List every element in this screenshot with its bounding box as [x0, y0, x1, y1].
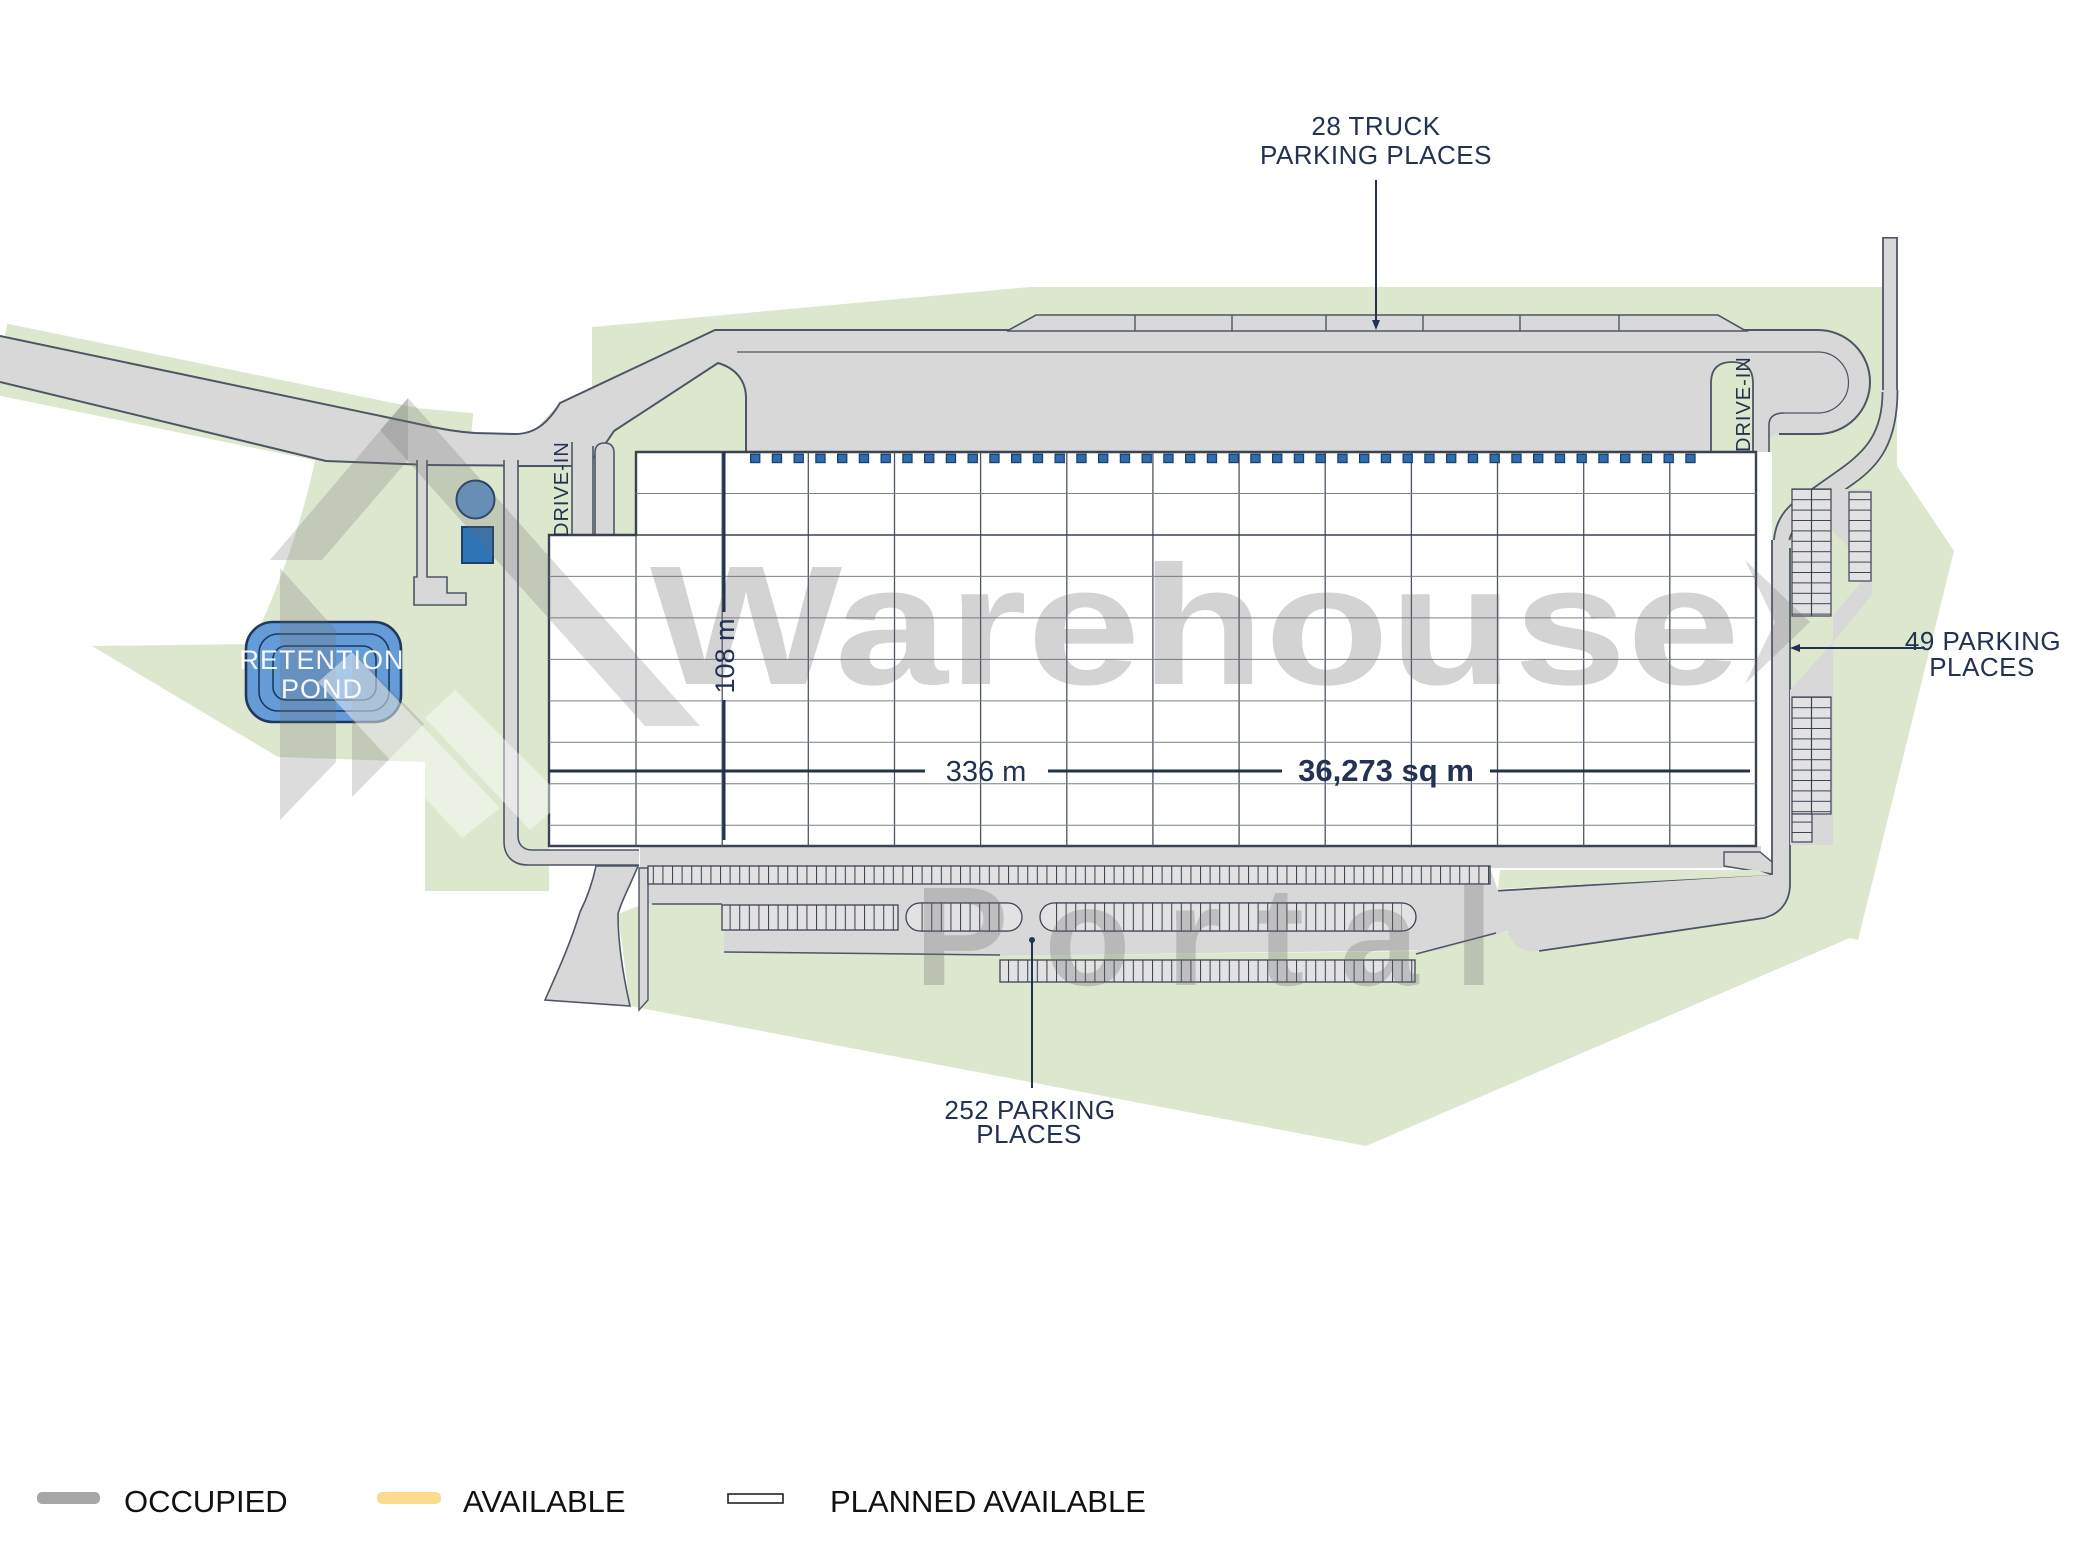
svg-text:AVAILABLE: AVAILABLE [463, 1484, 626, 1519]
svg-text:Portal: Portal [915, 857, 1494, 1015]
svg-text:36,273 sq m: 36,273 sq m [1298, 753, 1474, 788]
svg-text:DRIVE-IN: DRIVE-IN [551, 441, 573, 537]
svg-text:OCCUPIED: OCCUPIED [124, 1484, 288, 1519]
svg-text:PLACES: PLACES [976, 1119, 1082, 1149]
svg-text:28 TRUCK: 28 TRUCK [1311, 111, 1440, 141]
svg-text:RETENTION: RETENTION [239, 645, 404, 675]
svg-text:Warehouse: Warehouse [650, 530, 1740, 720]
svg-text:PLANNED AVAILABLE: PLANNED AVAILABLE [830, 1484, 1146, 1519]
svg-text:PARKING PLACES: PARKING PLACES [1260, 140, 1492, 170]
svg-text:PLACES: PLACES [1929, 652, 2035, 682]
svg-text:336 m: 336 m [946, 756, 1027, 788]
svg-text:DRIVE-IN: DRIVE-IN [1733, 356, 1755, 452]
svg-text:POND: POND [281, 674, 363, 704]
svg-text:108 m: 108 m [710, 618, 740, 693]
